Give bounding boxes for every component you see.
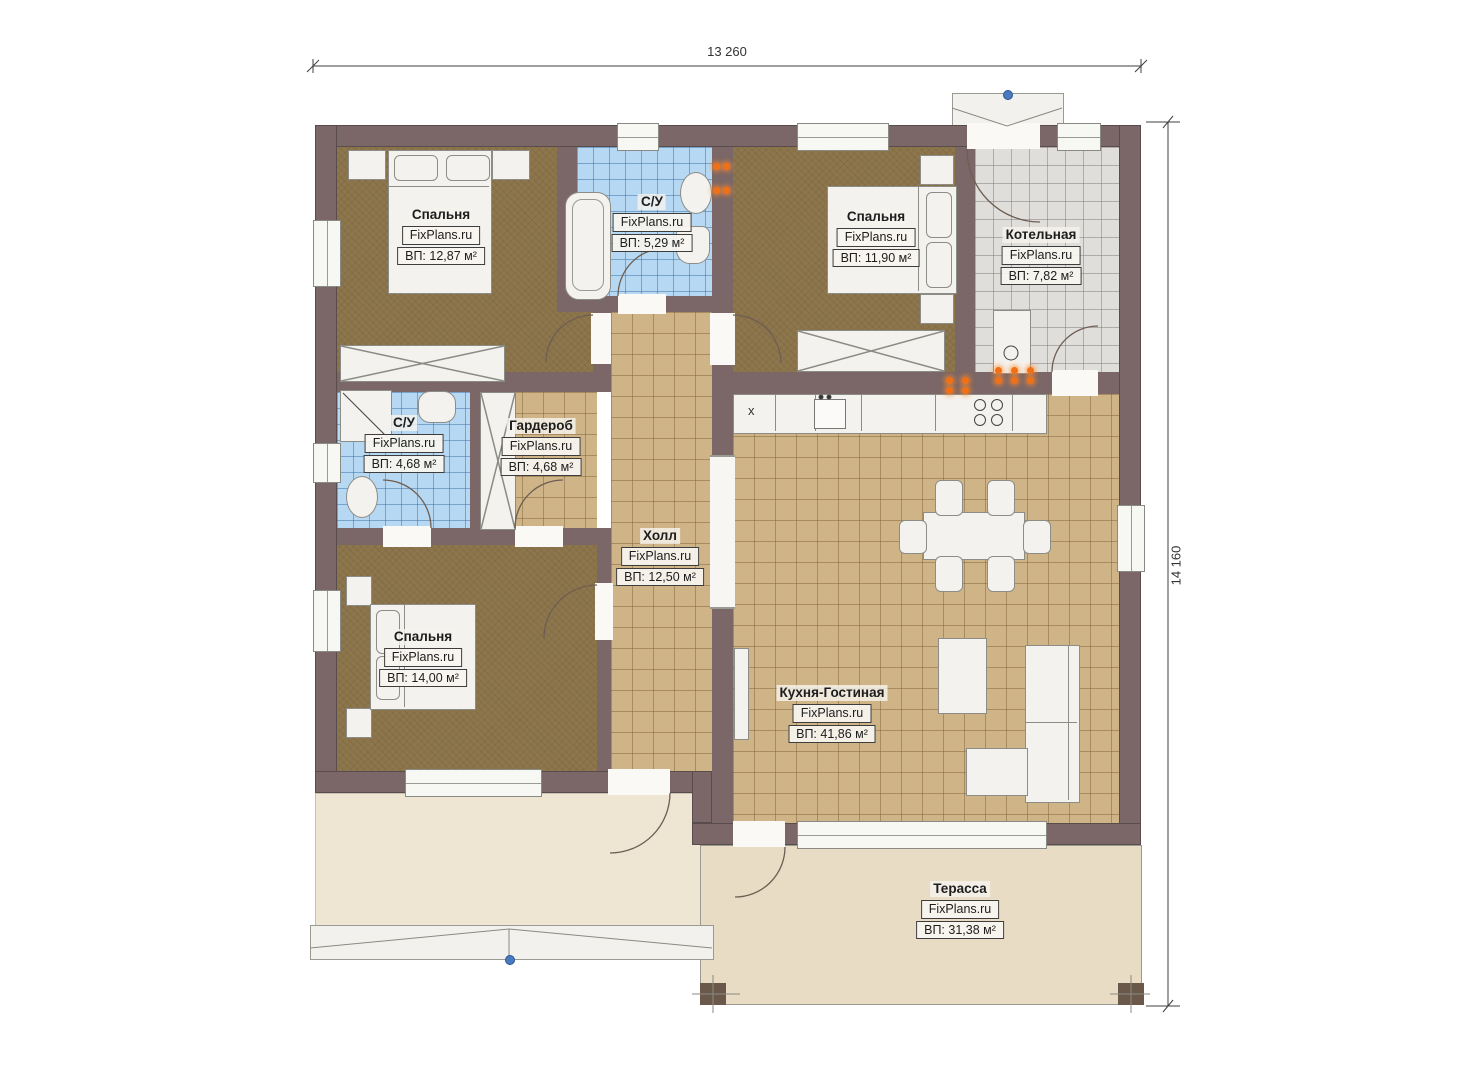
nightstand [348,150,386,180]
window-bedroom-1 [313,220,341,287]
room-name: Спальня [409,207,473,223]
chair [987,480,1015,516]
opening-hall-kitchen [710,455,735,609]
room-area: ВП: 41,86 м² [788,725,876,743]
chair [987,556,1015,592]
room-label-bedroom-3: Спальня FixPlans.ru ВП: 14,00 м² [379,628,467,687]
room-brand: FixPlans.ru [1002,246,1081,264]
room-brand: FixPlans.ru [502,437,581,455]
counter-divider [935,395,936,431]
room-label-bedroom-2: Спальня FixPlans.ru ВП: 11,90 м² [833,208,920,267]
kitchen-counter [733,394,1047,434]
window-kitchen-bottom [797,821,1047,849]
nightstand [920,294,954,324]
wall-right [1119,125,1141,845]
window-kitchen-right [1117,505,1145,572]
door-gap-entrance [967,123,1040,149]
door-gap-bathroom-1 [618,294,666,314]
dining-table [923,512,1025,560]
room-name: С/У [390,415,418,431]
room-brand: FixPlans.ru [365,434,444,452]
wall-bed3-top [337,528,611,545]
window-bedroom-3-left [313,590,341,652]
floor-plan: x [0,0,1474,1080]
dim-tick [1163,1000,1173,1012]
room-brand: FixPlans.ru [837,228,916,246]
room-brand: FixPlans.ru [793,704,872,722]
door-gap-bathroom-2 [383,526,431,547]
room-label-bathroom-1: С/У FixPlans.ru ВП: 5,29 м² [612,193,693,252]
room-label-boiler: Котельная FixPlans.ru ВП: 7,82 м² [1001,226,1082,285]
canopy-marker-dot [505,955,515,965]
socket-icon [711,185,731,195]
room-brand: FixPlans.ru [921,900,1000,918]
counter-divider [775,395,776,431]
room-name: Кухня-Гостиная [777,685,888,701]
wardrobe-cabinet-icon [340,345,505,382]
door-gap-bedroom-3 [595,583,613,640]
sink-icon [346,476,378,518]
chair [899,520,927,554]
wall-hall-bed3 [597,545,611,771]
bathtub-inner [572,199,604,291]
room-area: ВП: 12,87 м² [397,247,485,265]
wall-bath2-wardrobe [470,392,480,528]
door-gap-bedroom-2 [710,313,735,365]
dim-tick [307,60,319,72]
room-area: ВП: 31,38 м² [916,921,1004,939]
room-label-wardrobe: Гардероб FixPlans.ru ВП: 4,68 м² [501,417,582,476]
sofa-chaise [966,748,1028,796]
socket-icon [711,161,731,171]
chair [1023,520,1051,554]
counter-divider [861,395,862,431]
dim-tick [1163,116,1173,128]
room-brand: FixPlans.ru [384,648,463,666]
dimension-height-label: 14 160 [1169,536,1184,596]
pillow [394,155,438,181]
socket-icon [1025,365,1035,385]
pillow [926,242,952,288]
room-area: ВП: 4,68 м² [501,458,582,476]
room-name: Спальня [844,209,908,225]
pillow [926,192,952,238]
nightstand [346,708,372,738]
window-boiler [1057,123,1101,151]
porch-floor [315,793,702,932]
wall-connector [692,771,712,823]
terrace-post [1118,983,1144,1005]
room-label-kitchen-living: Кухня-Гостиная FixPlans.ru ВП: 41,86 м² [777,684,888,743]
room-area: ВП: 14,00 м² [379,669,467,687]
room-label-hall: Холл FixPlans.ru ВП: 12,50 м² [616,527,704,586]
coffee-table [938,638,987,714]
room-area: ВП: 12,50 м² [616,568,704,586]
socket-icon [1009,365,1019,385]
room-brand: FixPlans.ru [613,213,692,231]
room-name: Гардероб [506,418,576,434]
room-name: Терасса [930,881,990,897]
room-area: ВП: 7,82 м² [1001,267,1082,285]
chair [935,556,963,592]
room-name: С/У [638,194,666,210]
door-gap-bedroom-1 [591,313,611,364]
wall-bed2-boiler [955,147,975,372]
door-gap-wardrobe [515,526,563,547]
nightstand [920,155,954,185]
bed-blanket-line [389,186,489,187]
dimension-width-label: 13 260 [687,44,767,59]
door-gap-kitchen-terrace [733,821,785,847]
nightstand [346,576,372,606]
tv-cabinet [734,648,749,740]
nightstand [492,150,530,180]
window-bedroom-2 [797,123,889,151]
counter-divider [1012,395,1013,431]
room-area: ВП: 5,29 м² [612,234,693,252]
fridge-symbol: x [748,403,755,418]
room-label-terrace: Терасса FixPlans.ru ВП: 31,38 м² [916,880,1004,939]
room-brand: FixPlans.ru [402,226,481,244]
room-area: ВП: 11,90 м² [833,249,920,267]
socket-icon [944,375,954,395]
door-gap-boiler-kitchen [1052,370,1098,396]
socket-icon [960,375,970,395]
sofa-cushion-line [1026,722,1077,723]
dim-tick [1135,60,1147,72]
terrace-post [700,983,726,1005]
room-name: Котельная [1003,227,1080,243]
canopy-marker-dot [1003,90,1013,100]
window-bathroom-2 [313,443,341,483]
window-bathroom-1 [617,123,659,151]
room-name: Спальня [391,629,455,645]
kitchen-sink-icon [814,399,846,429]
sofa-back-line [1068,646,1069,800]
chair [935,480,963,516]
socket-icon [993,365,1003,385]
room-label-bedroom-1: Спальня FixPlans.ru ВП: 12,87 м² [397,206,485,265]
door-gap-hall-porch [608,769,670,795]
wardrobe-cabinet-icon [797,330,945,372]
room-name: Холл [640,528,680,544]
pillow [446,155,490,181]
room-brand: FixPlans.ru [621,547,700,565]
room-label-bathroom-2: С/У FixPlans.ru ВП: 4,68 м² [364,414,445,473]
window-bedroom-3-bottom [405,769,542,797]
sofa-icon [1025,645,1080,803]
room-area: ВП: 4,68 м² [364,455,445,473]
